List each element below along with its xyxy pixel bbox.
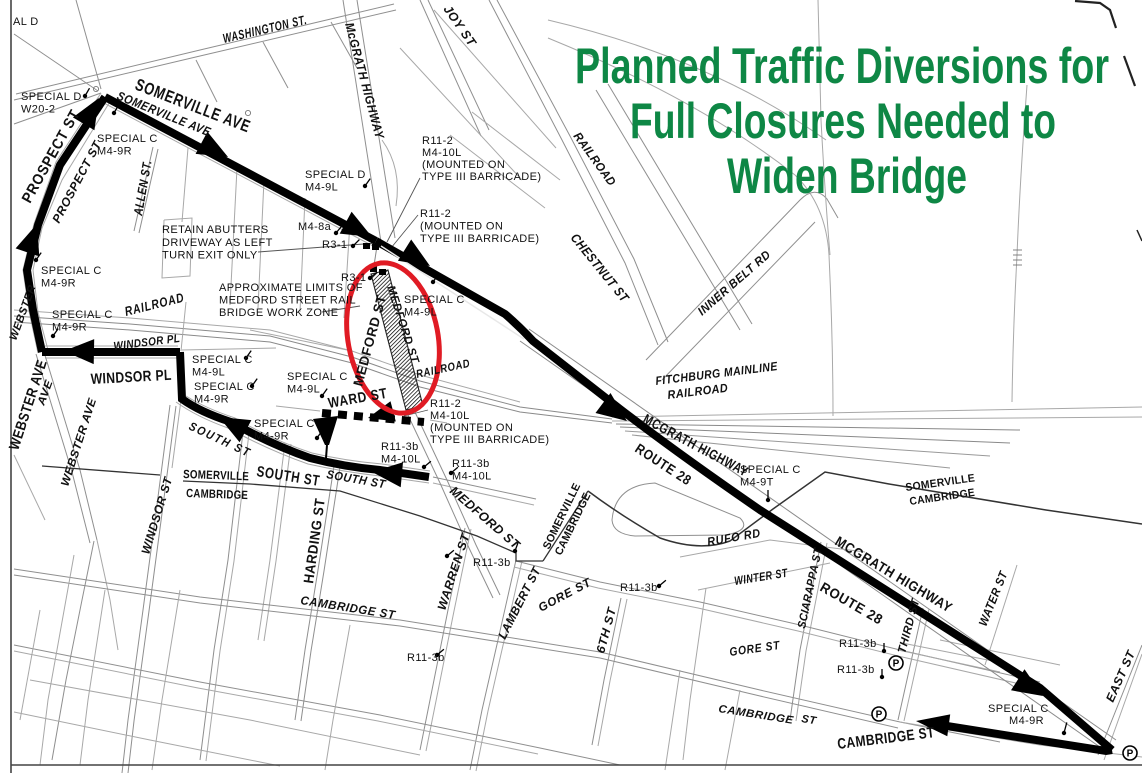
svg-text:BRIDGE WORK ZONE: BRIDGE WORK ZONE — [219, 307, 338, 319]
svg-text:(MOUNTED ON: (MOUNTED ON — [422, 159, 505, 171]
svg-text:M4-9L: M4-9L — [305, 181, 338, 193]
svg-text:M4-10L: M4-10L — [452, 470, 492, 482]
svg-text:MEDFORD STREET RAIL: MEDFORD STREET RAIL — [219, 295, 356, 307]
svg-text:P: P — [1127, 749, 1134, 760]
svg-text:Full Closures Needed to: Full Closures Needed to — [630, 93, 1056, 149]
svg-text:M4-9L: M4-9L — [287, 383, 320, 395]
svg-text:M4-9R: M4-9R — [41, 277, 76, 289]
svg-text:SPECIAL C: SPECIAL C — [404, 294, 465, 306]
svg-text:CAMBRIDGE: CAMBRIDGE — [186, 486, 248, 502]
svg-text:R11-3b: R11-3b — [839, 638, 877, 650]
svg-text:AL D: AL D — [13, 16, 39, 28]
svg-text:R11-3b: R11-3b — [620, 582, 658, 594]
svg-text:M4-9R: M4-9R — [52, 321, 87, 333]
svg-text:R11-3b: R11-3b — [837, 664, 875, 676]
svg-text:SPECIAL C: SPECIAL C — [988, 703, 1049, 715]
svg-text:DRIVEWAY AS LEFT: DRIVEWAY AS LEFT — [162, 237, 273, 249]
svg-text:M4-10L: M4-10L — [381, 453, 421, 465]
svg-text:P: P — [876, 710, 883, 721]
svg-text:TYPE III BARRICADE): TYPE III BARRICADE) — [430, 434, 549, 446]
svg-text:SPECIAL C: SPECIAL C — [192, 354, 253, 366]
svg-text:R11-2: R11-2 — [422, 135, 453, 147]
svg-text:SPECIAL D: SPECIAL D — [21, 91, 82, 103]
svg-text:SOMERVILLE: SOMERVILLE — [183, 467, 249, 483]
svg-text:SPECIAL C: SPECIAL C — [52, 309, 113, 321]
svg-text:TYPE III BARRICADE): TYPE III BARRICADE) — [422, 171, 541, 183]
svg-text:P: P — [893, 659, 900, 670]
svg-text:SPECIAL C: SPECIAL C — [97, 133, 158, 145]
svg-text:W20-2: W20-2 — [21, 103, 55, 115]
svg-text:SPECIAL C: SPECIAL C — [41, 265, 102, 277]
svg-text:M4-9L: M4-9L — [192, 366, 225, 378]
svg-text:R3-1: R3-1 — [322, 239, 347, 251]
svg-text:SPECIAL C: SPECIAL C — [287, 371, 348, 383]
svg-text:(MOUNTED ON: (MOUNTED ON — [420, 221, 503, 233]
svg-text:(MOUNTED ON: (MOUNTED ON — [430, 422, 513, 434]
svg-text:M4-9R: M4-9R — [254, 430, 289, 442]
svg-text:SPECIAL C: SPECIAL C — [254, 418, 315, 430]
svg-text:Widen Bridge: Widen Bridge — [727, 148, 967, 204]
svg-text:M4-9T: M4-9T — [740, 476, 774, 488]
svg-text:M4-8a: M4-8a — [298, 221, 332, 233]
svg-text:TURN EXIT ONLY: TURN EXIT ONLY — [162, 250, 258, 262]
svg-text:M4-10L: M4-10L — [422, 147, 462, 159]
svg-text:R11-3b: R11-3b — [473, 557, 511, 569]
svg-text:TYPE III BARRICADE): TYPE III BARRICADE) — [420, 233, 539, 245]
svg-text:M4-9R: M4-9R — [194, 393, 229, 405]
svg-text:SPECIAL D: SPECIAL D — [305, 169, 366, 181]
svg-text:Planned Traffic Diversions for: Planned Traffic Diversions for — [575, 38, 1109, 94]
svg-text:APPROXIMATE LIMITS OF: APPROXIMATE LIMITS OF — [219, 282, 363, 294]
svg-text:R11-3b: R11-3b — [452, 458, 490, 470]
svg-text:M4-9L: M4-9L — [404, 306, 437, 318]
svg-text:R11-3b: R11-3b — [407, 652, 445, 664]
svg-text:RETAIN ABUTTERS: RETAIN ABUTTERS — [162, 224, 269, 236]
svg-text:R11-2: R11-2 — [430, 398, 461, 410]
svg-text:M4-10L: M4-10L — [430, 410, 470, 422]
svg-text:R11-2: R11-2 — [420, 208, 451, 220]
svg-text:M4-9R: M4-9R — [1009, 715, 1044, 727]
svg-text:R11-3b: R11-3b — [381, 441, 419, 453]
svg-text:ST: ST — [801, 713, 819, 727]
svg-text:SPECIAL C: SPECIAL C — [194, 381, 255, 393]
